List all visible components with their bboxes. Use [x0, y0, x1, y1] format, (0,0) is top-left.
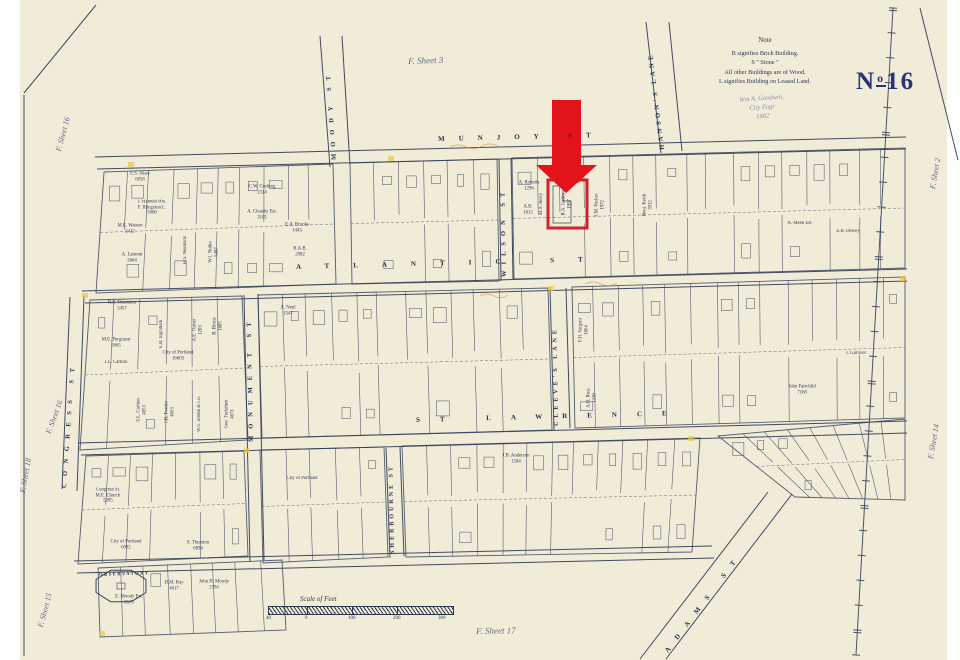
parcel-label: A.B. 1612 — [523, 204, 533, 215]
parcel-label: E.B. Dewey — [836, 229, 859, 235]
parcel-label: Geo. Trefethen 4671 — [224, 400, 235, 429]
parcel-label: City of Portland — [287, 476, 318, 482]
parcel-label: A.E. Turner 1203 — [192, 319, 203, 342]
sheet-ref: F. Sheet 3 — [408, 55, 443, 66]
parcel-label: C.W. Cushing 2314 — [249, 184, 276, 195]
parcel-label: B. Birnie 1805 — [212, 317, 223, 335]
plate-sup: o — [876, 71, 886, 87]
notes-line: S " Stone " — [684, 58, 846, 68]
parcel-label: A.H. Ross 1230 — [586, 388, 597, 408]
parcel-label: City of Portland 16603 — [163, 350, 194, 361]
parcel-label: John H. Moody 5794 — [199, 579, 229, 590]
parcel-label: R.S. Neumann 5457 — [108, 300, 136, 311]
parcel-label: W.S. Jordan & Co. — [197, 396, 203, 432]
highlighter-mark — [99, 631, 105, 636]
parcel-label: Congress St. M.E. Church 5285 — [96, 488, 121, 505]
parcel-label: A. Meek Est. — [787, 221, 812, 227]
parcel-label: J.M. Packer 1972 — [594, 194, 605, 217]
parcel-label: H.S. Neumann — [183, 236, 189, 264]
notes-line: All other Buildings are of Wood. — [684, 68, 846, 78]
notes-line: L signifies Building on Leased Land. — [684, 77, 846, 87]
map-canvas — [0, 0, 960, 660]
parcel-label: S.L. Carlton 4853 — [136, 398, 147, 422]
parcel-label: Benj. Keith 3912 — [642, 194, 653, 216]
sheet-match-line — [852, 8, 897, 656]
legend-notes: Note B signifies Brick Building. S " Sto… — [684, 36, 846, 87]
highlighter-mark — [548, 286, 554, 291]
scale-tick: 200 — [393, 616, 401, 621]
parcel-label: J.B. Anderson 1584 — [502, 453, 529, 464]
sheet-ref: F. Sheet 17 — [476, 625, 516, 636]
parcel-label: M.E. Ferguson 2665 — [102, 337, 131, 348]
scale-label: Scale of Feet — [300, 595, 337, 603]
map-sheet: No16 Note B signifies Brick Building. S … — [0, 0, 960, 660]
parcel-label: A. Lamont 2664 — [122, 252, 143, 263]
scale-tick: 40 — [266, 616, 271, 621]
parcel-label: A. Cleasby Est. 3105 — [247, 209, 277, 220]
parcel-label: D.M. Ray 4617 — [164, 580, 183, 591]
parcel-label: J. Hannah Hrs. F. Illingston L. 5660 — [138, 200, 167, 217]
parcel-label: A. Noel 1547 — [280, 305, 295, 316]
parcel-label: E.A. Brooks 1443 — [285, 222, 309, 233]
parcel-label: J. Gulliver — [846, 351, 866, 357]
highlighter-mark — [82, 293, 88, 298]
scale-bar — [268, 606, 454, 615]
plate-digits: 16 — [886, 68, 915, 95]
plate-number: No16 — [856, 68, 915, 96]
parcel-label: A. Roberts 1296 — [519, 180, 540, 191]
scale-tick: 0 — [305, 616, 308, 621]
highlighted-parcel-label: R.A. Gatley 1957 — [561, 192, 572, 215]
parcel-label: J.R. Fowler 4663 — [164, 401, 175, 423]
parcel-label: F.H. Sargent 1864 — [578, 318, 589, 342]
parcel-label: S. Thurston 6894 — [187, 540, 209, 551]
parcel-label: M.E. Watson 2412 — [118, 223, 143, 234]
highlighter-mark — [388, 156, 394, 161]
parcel-label: E.B. Ingraham — [159, 320, 165, 348]
notes-title: Note — [684, 36, 846, 47]
parcel-label: J.L. Carlton — [105, 360, 128, 366]
highlighter-mark — [900, 276, 906, 281]
highlighter-mark — [128, 162, 134, 167]
highlighter-mark — [688, 436, 694, 441]
plate-n: N — [856, 68, 876, 95]
highlighter-mark — [244, 448, 250, 453]
parcel-label: M.A. Berry — [539, 193, 545, 215]
scale-tick: 100 — [348, 616, 356, 621]
engineer-signature: Wm A. Goodwin, City Engr 1882 — [739, 93, 785, 122]
parcel-label: John Fairchild 7168 — [788, 384, 816, 395]
parcel-label: E.S. Shaw 6858 — [130, 171, 150, 182]
parcel-label: City of Portland 6985 — [111, 539, 142, 550]
parcel-label: E. Moody Est. 8575 — [115, 594, 143, 605]
parcel-label: W.J. Noble 5387 — [208, 241, 219, 262]
scale-tick: 300 — [438, 616, 446, 621]
notes-line: B signifies Brick Building. — [684, 49, 846, 59]
parcel-label: R.A.B. 2082 — [293, 246, 306, 257]
